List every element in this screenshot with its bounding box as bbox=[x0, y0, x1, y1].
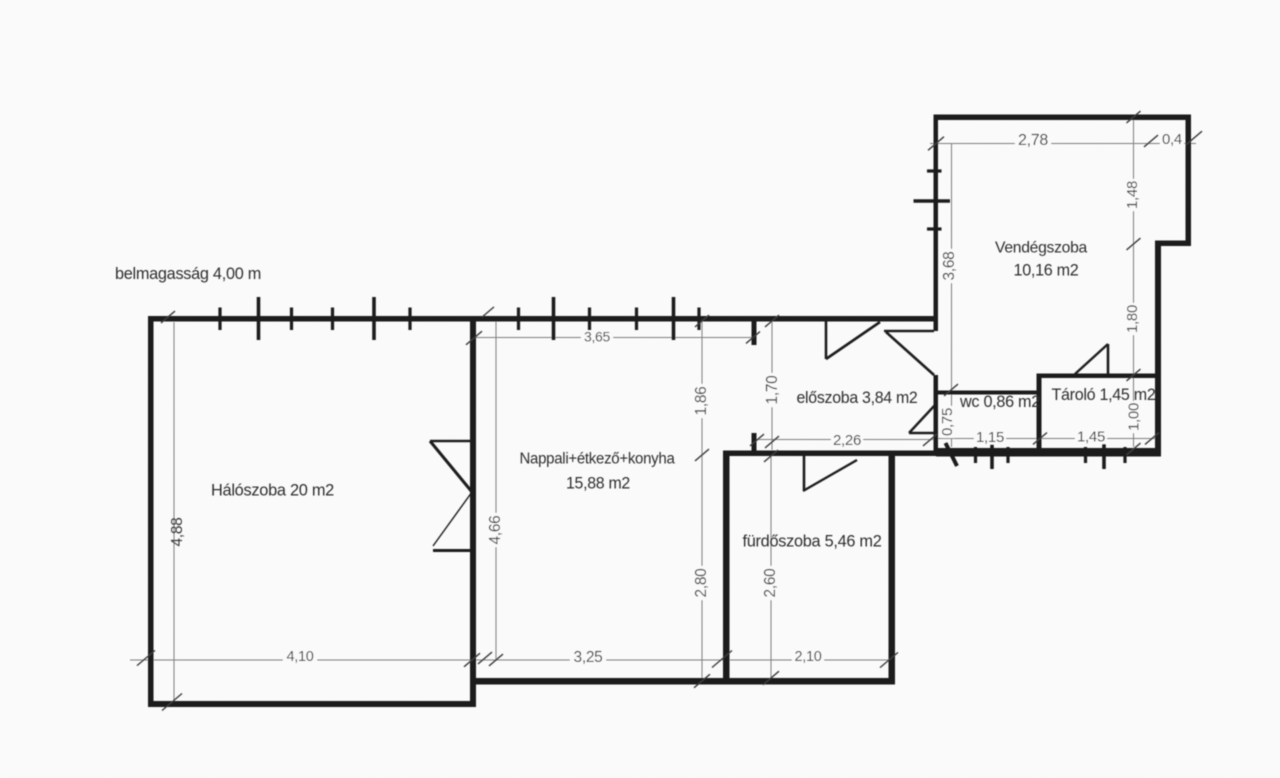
svg-text:1,15: 1,15 bbox=[976, 429, 1004, 446]
svg-text:1,45: 1,45 bbox=[1077, 428, 1105, 445]
svg-text:előszoba 3,84 m2: előszoba 3,84 m2 bbox=[797, 389, 918, 407]
svg-text:4,10: 4,10 bbox=[286, 649, 313, 665]
svg-text:4,88: 4,88 bbox=[169, 518, 186, 547]
svg-text:1,80: 1,80 bbox=[1124, 305, 1141, 333]
svg-text:1,86: 1,86 bbox=[693, 387, 710, 416]
svg-text:Hálószoba 20 m2: Hálószoba 20 m2 bbox=[211, 481, 334, 499]
svg-text:15,88 m2: 15,88 m2 bbox=[566, 474, 630, 492]
svg-text:2,60: 2,60 bbox=[762, 568, 779, 598]
svg-text:3,25: 3,25 bbox=[574, 649, 603, 666]
svg-text:0,4: 0,4 bbox=[1162, 131, 1182, 148]
svg-text:belmagasság 4,00 m: belmagasság 4,00 m bbox=[115, 264, 261, 283]
svg-text:wc 0,86 m2: wc 0,86 m2 bbox=[959, 393, 1040, 411]
svg-text:0,75: 0,75 bbox=[939, 408, 956, 436]
svg-text:3,68: 3,68 bbox=[941, 252, 958, 281]
svg-text:1,70: 1,70 bbox=[764, 375, 781, 405]
svg-text:Vendégszoba: Vendégszoba bbox=[995, 240, 1087, 257]
svg-text:2,78: 2,78 bbox=[1018, 132, 1048, 149]
svg-text:fürdőszoba 5,46 m2: fürdőszoba 5,46 m2 bbox=[743, 531, 882, 550]
svg-text:2,10: 2,10 bbox=[794, 649, 821, 665]
svg-text:Nappali+étkező+konyha: Nappali+étkező+konyha bbox=[520, 451, 676, 468]
svg-text:2,80: 2,80 bbox=[693, 568, 710, 598]
svg-text:3,65: 3,65 bbox=[584, 329, 611, 345]
svg-text:2,26: 2,26 bbox=[833, 432, 861, 449]
svg-text:1,00: 1,00 bbox=[1125, 403, 1142, 431]
svg-text:4,66: 4,66 bbox=[487, 516, 504, 545]
svg-text:10,16 m2: 10,16 m2 bbox=[1014, 261, 1079, 279]
svg-text:1,48: 1,48 bbox=[1124, 181, 1141, 209]
